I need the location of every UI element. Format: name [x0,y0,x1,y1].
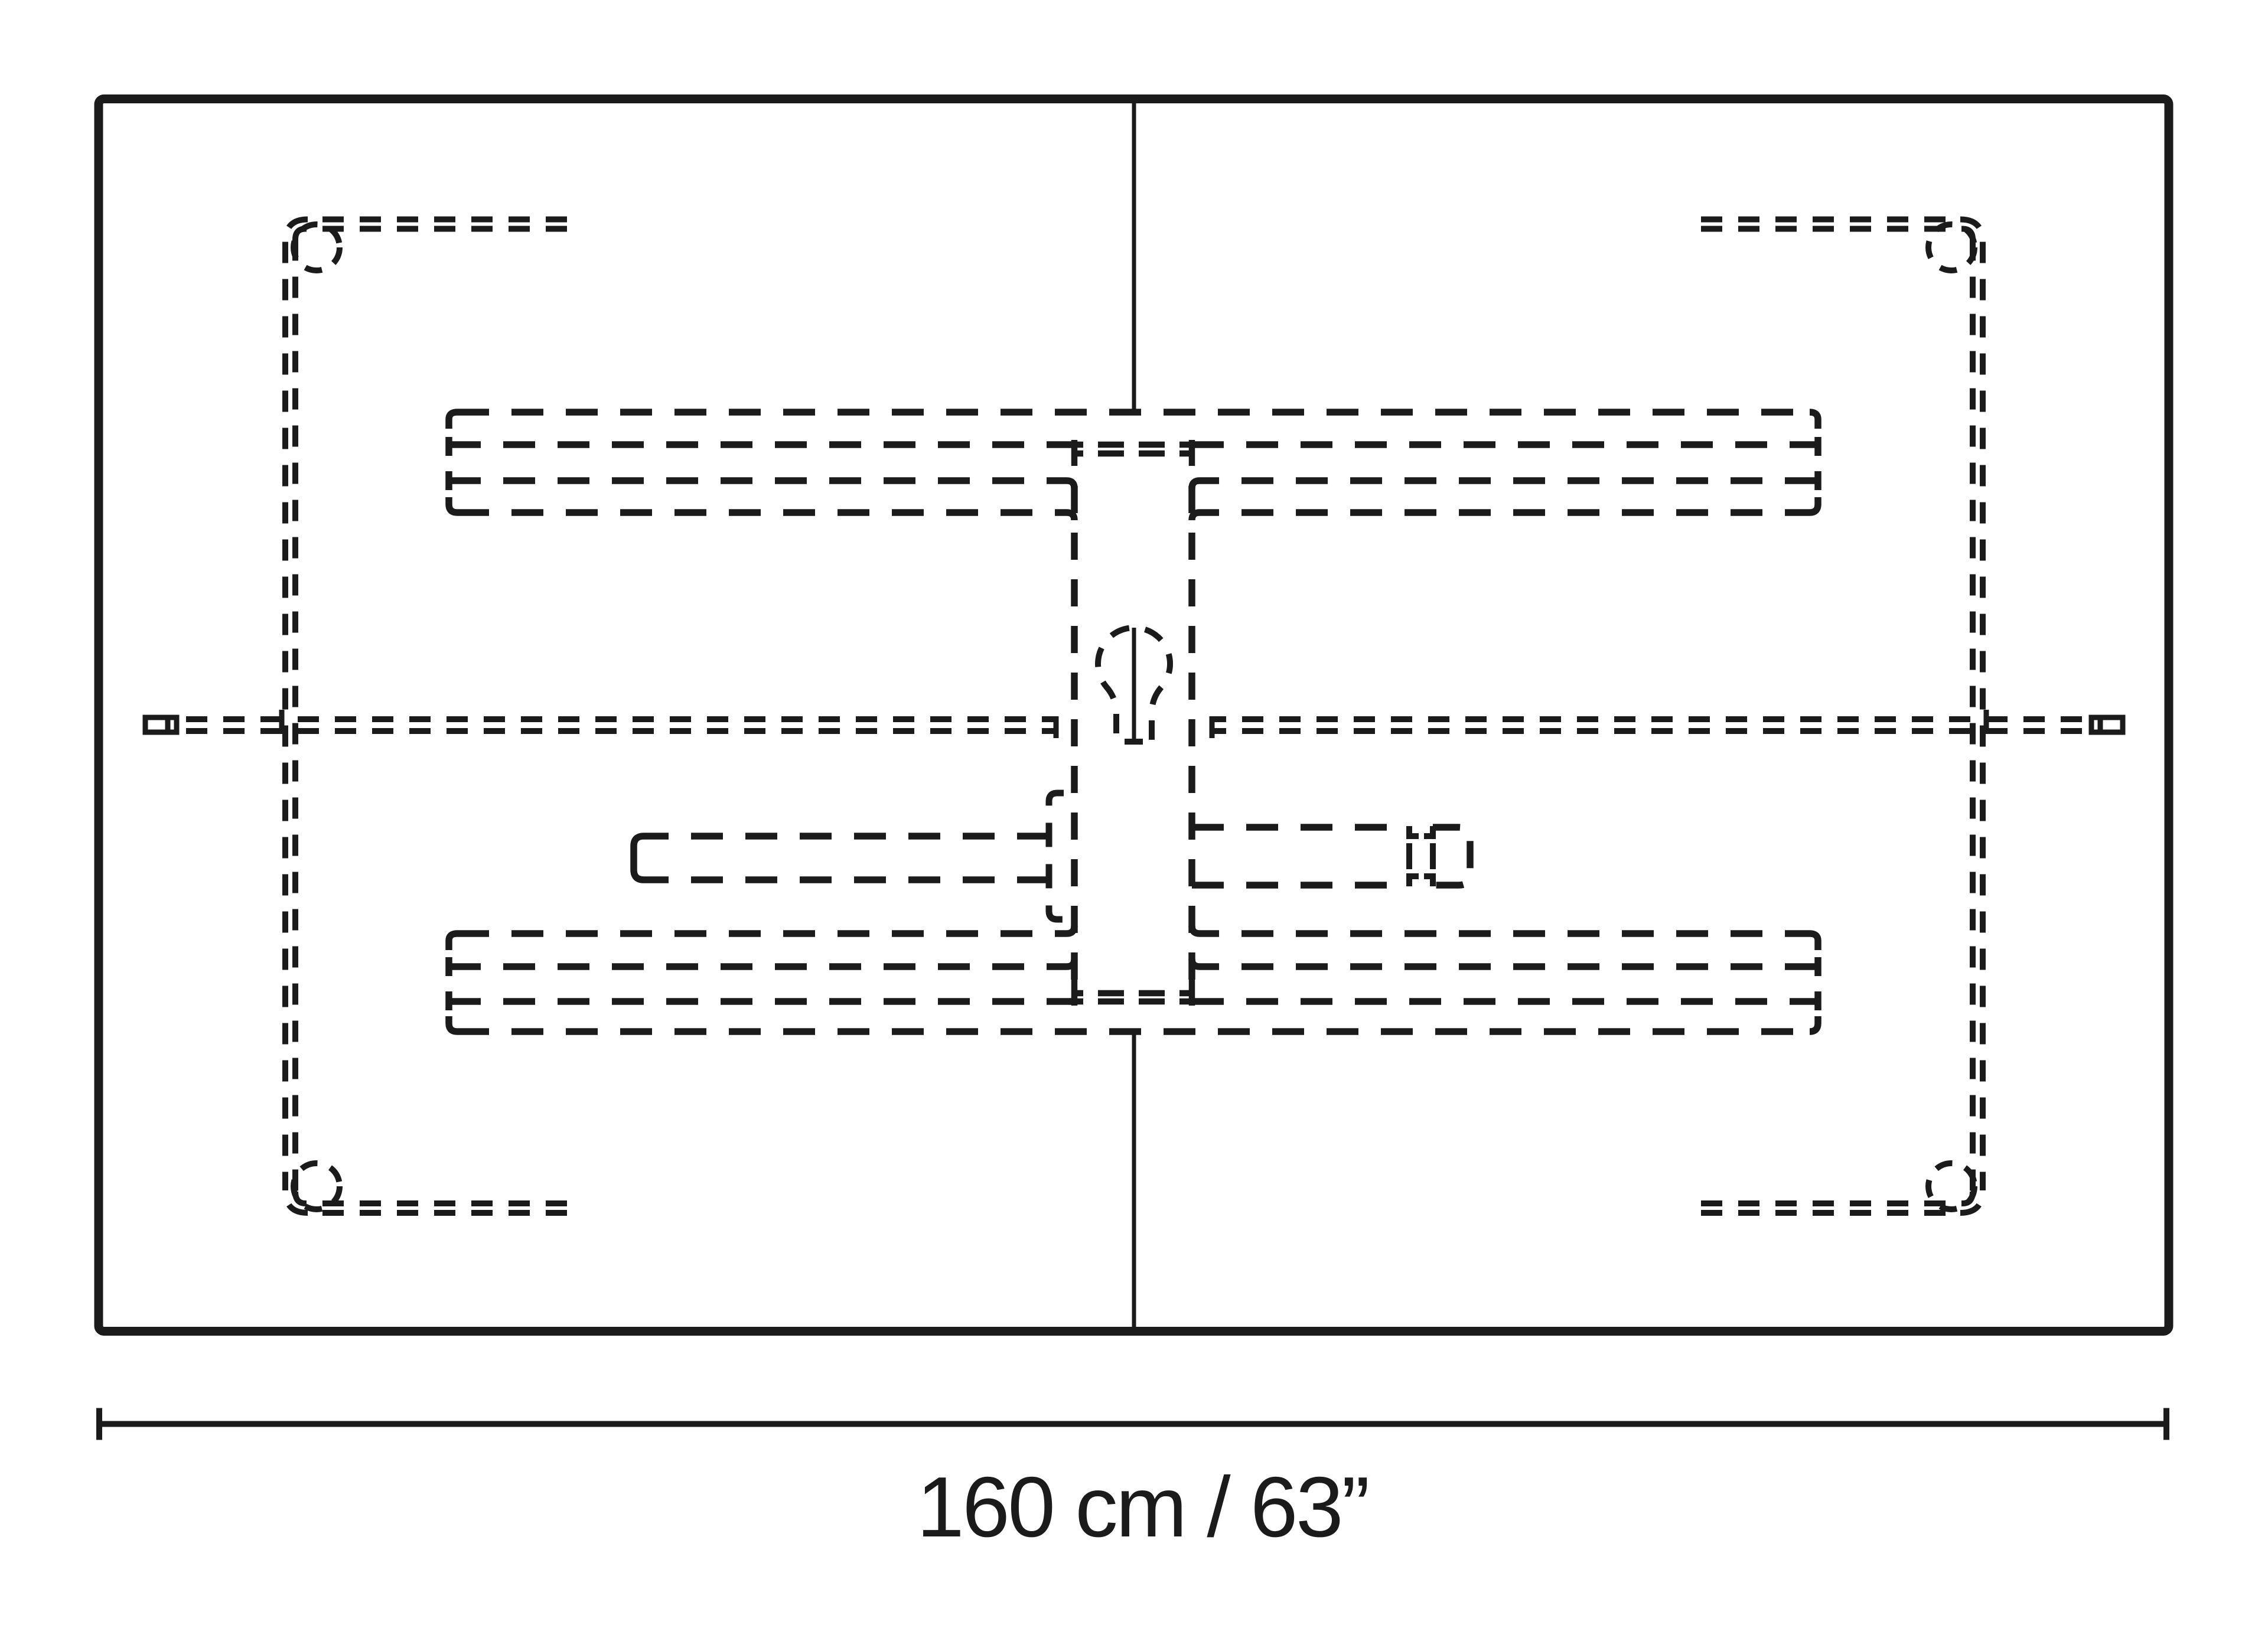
svg-text:160 cm / 63”: 160 cm / 63” [917,1459,1368,1555]
